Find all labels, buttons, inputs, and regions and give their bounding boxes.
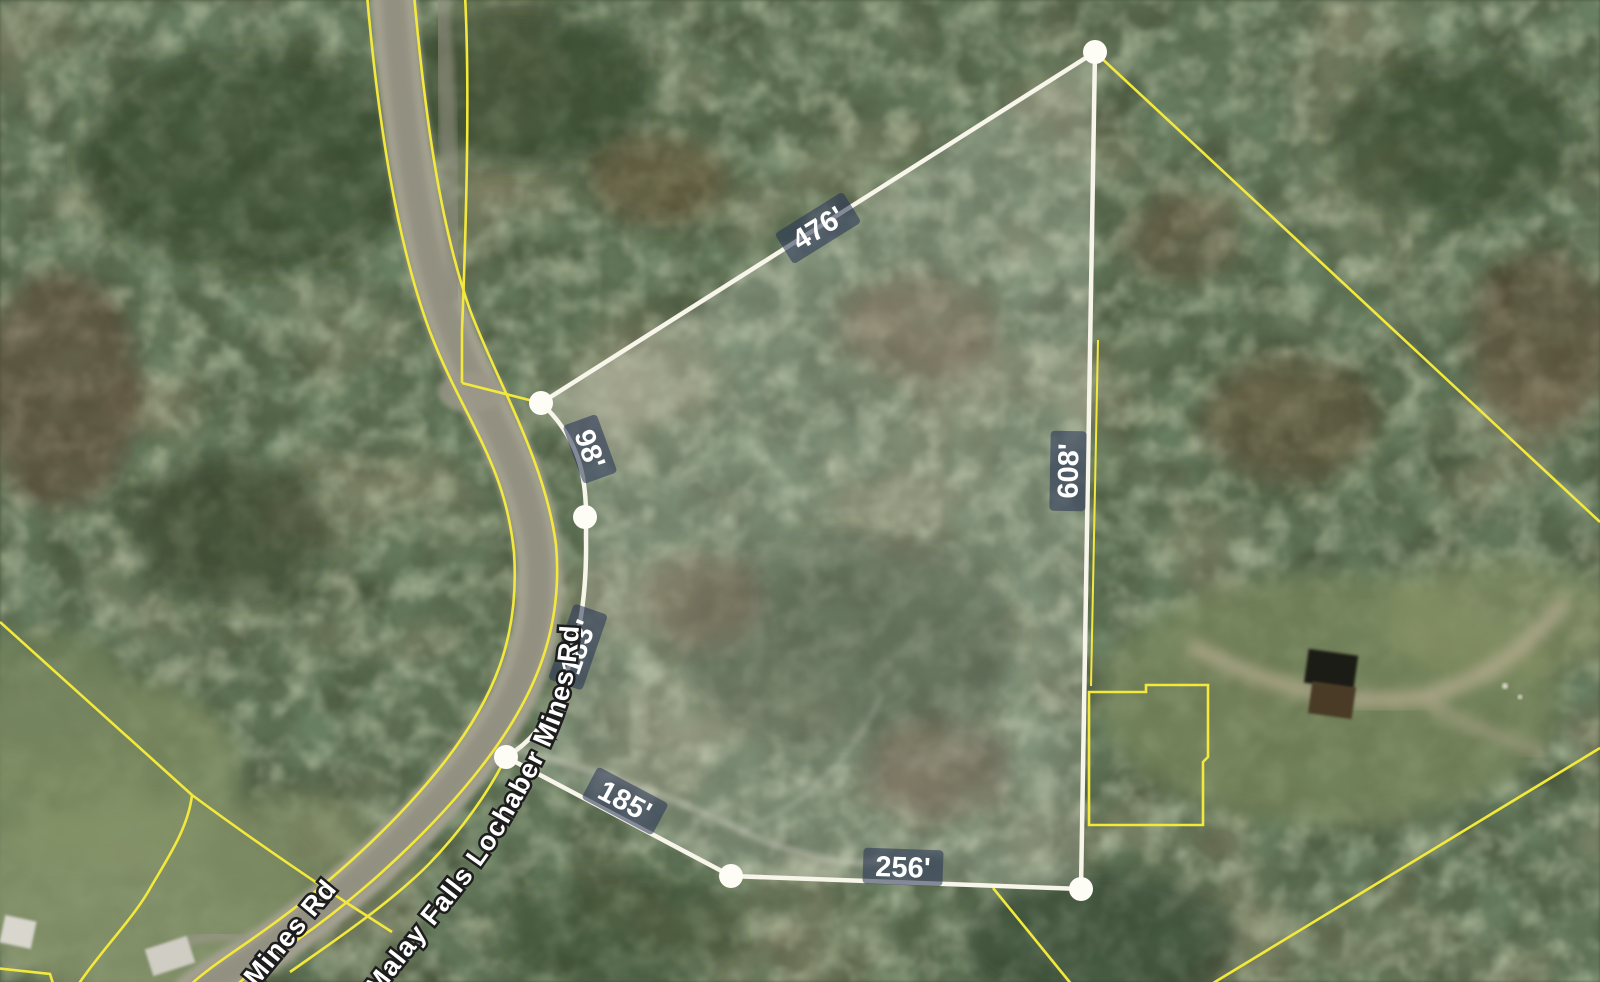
measurement-608: 608' — [1049, 431, 1086, 512]
parcel-vertex-road-middle[interactable] — [573, 505, 597, 529]
parcel-vertex-north[interactable] — [1083, 40, 1107, 64]
cabin-structure — [1308, 681, 1356, 719]
measurement-text: 256' — [875, 851, 931, 885]
measurement-text: 608' — [1053, 443, 1086, 499]
parcel-vertex-southeast[interactable] — [1069, 877, 1093, 901]
parcel-vertex-south[interactable] — [719, 864, 743, 888]
satellite-map[interactable]: 476' 98' 183' 185' 256' 608' Malay Falls… — [0, 0, 1600, 982]
parcel-vertex-road-upper[interactable] — [529, 391, 553, 415]
satellite-map-viewport[interactable]: 476' 98' 183' 185' 256' 608' Malay Falls… — [0, 0, 1600, 982]
measurement-256: 256' — [862, 848, 943, 887]
